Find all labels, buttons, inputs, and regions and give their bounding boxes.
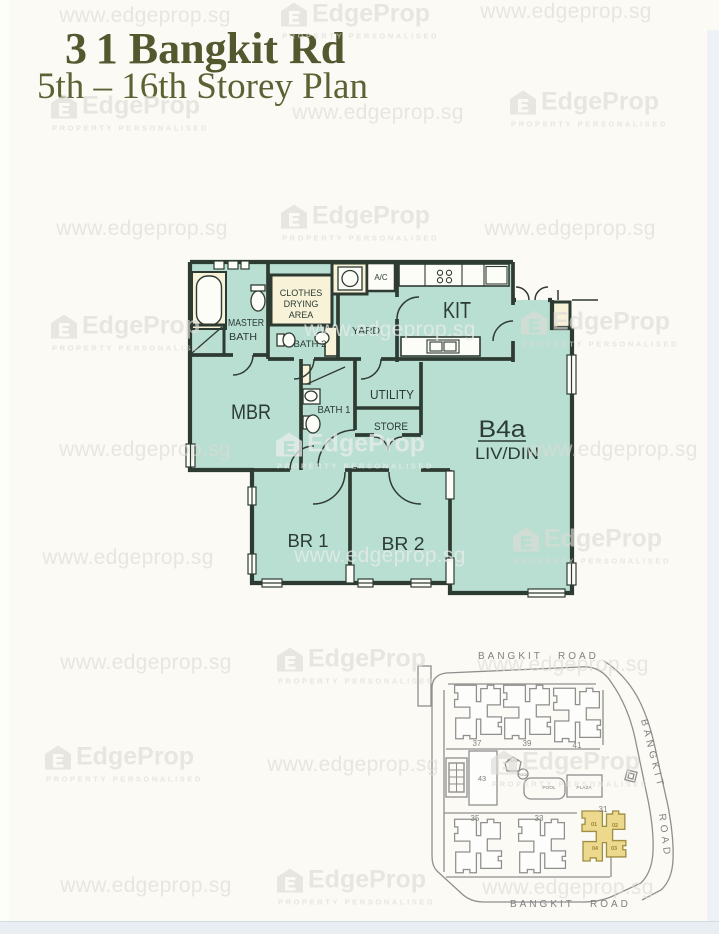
svg-text:04: 04 <box>592 846 599 852</box>
svg-text:BANGKIT: BANGKIT <box>510 899 575 910</box>
svg-text:MASTER: MASTER <box>228 317 264 329</box>
svg-text:B4a: B4a <box>479 416 527 443</box>
svg-text:43: 43 <box>478 774 486 783</box>
svg-text:BATH: BATH <box>229 331 257 343</box>
svg-text:BATH 1: BATH 1 <box>318 405 351 416</box>
svg-text:MBR: MBR <box>231 401 271 424</box>
svg-text:UTILITY: UTILITY <box>370 387 414 402</box>
svg-text:03: 03 <box>611 846 617 852</box>
svg-text:DRYING: DRYING <box>284 299 319 309</box>
svg-text:35: 35 <box>471 814 480 823</box>
svg-text:ROAD: ROAD <box>590 899 631 910</box>
svg-text:CLOTHES: CLOTHES <box>280 288 323 298</box>
svg-text:01: 01 <box>591 822 597 828</box>
svg-text:02: 02 <box>612 823 618 829</box>
svg-text:37: 37 <box>473 739 482 748</box>
svg-text:33: 33 <box>535 814 544 823</box>
svg-text:31: 31 <box>599 805 608 814</box>
svg-text:A/C: A/C <box>374 273 388 282</box>
